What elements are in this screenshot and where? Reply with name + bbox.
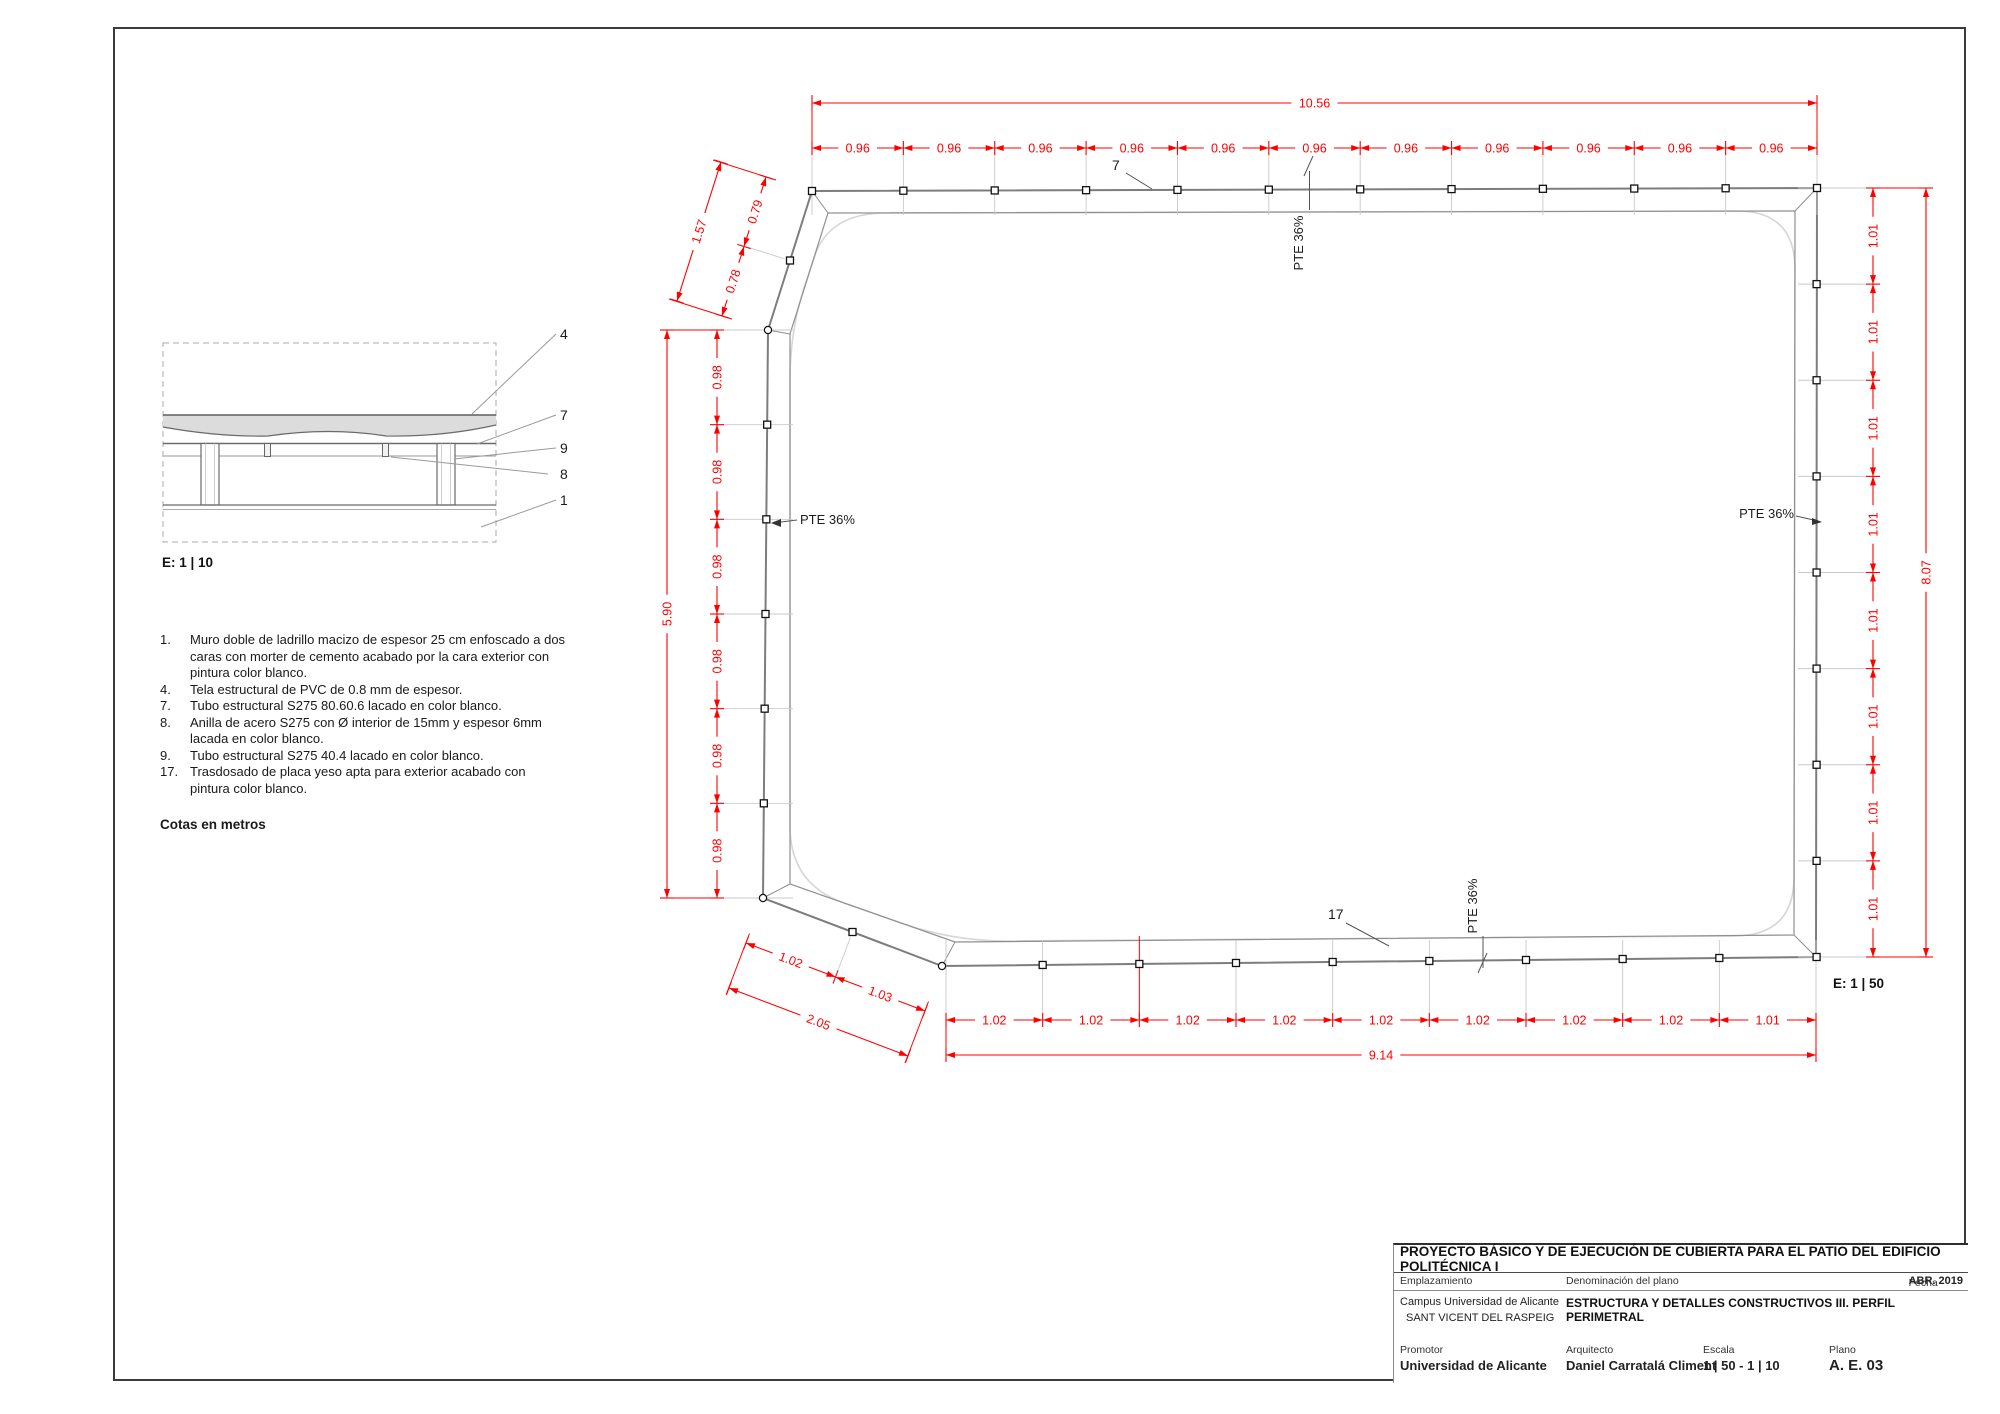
- dim-label: 1.02: [982, 1013, 1006, 1027]
- dim-label: 0.98: [710, 460, 724, 484]
- dim-arrow: [1719, 1017, 1728, 1023]
- dim-arrow: [1614, 1017, 1623, 1023]
- dim-arrow: [714, 510, 720, 519]
- anchor-marker: [1813, 857, 1820, 864]
- corner-marker: [759, 894, 766, 901]
- dim-arrow: [714, 794, 720, 803]
- dim-arrow: [1870, 284, 1876, 293]
- leader-8: [391, 457, 548, 474]
- anchor-marker: [1539, 185, 1546, 192]
- dim-label: 0.96: [1576, 141, 1600, 155]
- dim-label: 0.96: [1485, 141, 1509, 155]
- note-item-4: 4.Tela estructural de PVC de 0.8 mm de e…: [160, 682, 568, 699]
- dim-line: [837, 1029, 908, 1056]
- detail-callout-9: 9: [560, 440, 568, 456]
- dim-label: 10.56: [1299, 96, 1330, 110]
- dim-label: 1.57: [689, 218, 710, 245]
- anchor-marker: [1813, 761, 1820, 768]
- dim-arrow: [1717, 145, 1726, 151]
- anchor-marker: [787, 257, 794, 264]
- arquitecto-label: Arquitecto: [1566, 1344, 1613, 1356]
- dim-label: 1.01: [1866, 608, 1880, 632]
- dim-arrow: [714, 425, 720, 434]
- dim-label: 0.96: [1759, 141, 1783, 155]
- emplazamiento-line2: SANT VICENT DEL RASPEIG: [1406, 1312, 1554, 1324]
- dim-arrow: [1870, 275, 1876, 284]
- anchor-marker: [1136, 960, 1143, 967]
- anchor-marker: [1265, 186, 1272, 193]
- dim-arrow: [836, 977, 845, 983]
- plan-scale-label: E: 1 | 50: [1833, 976, 1884, 991]
- dim-arrow: [946, 1017, 955, 1023]
- anchor-marker: [1357, 186, 1364, 193]
- detail-callout-7: 7: [560, 407, 568, 423]
- dim-chain-top: 0.960.960.960.960.960.960.960.960.960.96…: [812, 141, 1817, 155]
- detail-dashed-boundary: [163, 343, 496, 542]
- dim-arrow: [714, 330, 720, 339]
- plan-callout-7: 7: [1112, 157, 1120, 173]
- dim-arrow: [1517, 1017, 1526, 1023]
- promotor-value: Universidad de Alicante: [1400, 1358, 1547, 1373]
- slope-leader-top-slash: [1304, 156, 1313, 176]
- dim-label: 1.01: [1866, 224, 1880, 248]
- dim-arrow: [899, 1050, 908, 1056]
- dim-label: 1.01: [1866, 704, 1880, 728]
- dim-arrow: [946, 1052, 955, 1058]
- dim-label: 0.96: [1120, 141, 1144, 155]
- dim-label: 1.02: [1272, 1013, 1296, 1027]
- escala-value: 1 | 50 - 1 | 10: [1703, 1358, 1780, 1373]
- dim-arrow: [1177, 145, 1186, 151]
- note-number: 9.: [160, 748, 190, 765]
- dim-label: 0.96: [1302, 141, 1326, 155]
- detail-section-drawing: 4 7 9 8 1 E: 1 | 10: [162, 326, 568, 570]
- note-number: 4.: [160, 682, 190, 699]
- anchor-marker: [761, 705, 768, 712]
- dim-arrow: [677, 292, 683, 301]
- dim-total-left: 5.90: [660, 330, 674, 898]
- corner-marker: [938, 962, 945, 969]
- notes-list: 1.Muro doble de ladrillo macizo de espes…: [160, 632, 568, 834]
- dim-arrow: [729, 988, 738, 994]
- dim-arrow: [1870, 564, 1876, 573]
- dim-arrow: [916, 1005, 925, 1011]
- dim-label: 1.02: [1562, 1013, 1586, 1027]
- dim-arrow: [1526, 1017, 1535, 1023]
- dim-arrow: [1808, 100, 1817, 106]
- title-block-footer-row: Promotor Arquitecto Escala Plano Univers…: [1394, 1342, 1968, 1385]
- slope-label-left: PTE 36%: [800, 512, 855, 527]
- note-item-7: 7.Tubo estructural S275 80.60.6 lacado e…: [160, 698, 568, 715]
- plano-value: A. E. 03: [1829, 1357, 1883, 1374]
- dim-label: 1.03: [866, 983, 894, 1005]
- anchor-marker: [809, 188, 816, 195]
- dim-label: 0.96: [846, 141, 870, 155]
- dim-arrow: [1870, 467, 1876, 476]
- dim-arrow: [995, 145, 1004, 151]
- anchor-marker: [1813, 377, 1820, 384]
- dim-arrow: [1870, 380, 1876, 389]
- leader-4: [472, 334, 556, 414]
- steel-ring-left: [265, 444, 271, 457]
- dim-label: 0.78: [723, 268, 744, 295]
- post-tube-right: [437, 444, 455, 506]
- emplazamiento-line1: Campus Universidad de Alicante: [1400, 1296, 1559, 1308]
- note-item-1: 1.Muro doble de ladrillo macizo de espes…: [160, 632, 568, 682]
- note-text: Trasdosado de placa yeso apta para exter…: [190, 764, 568, 797]
- anchor-marker: [1448, 186, 1455, 193]
- dim-arrow: [1168, 145, 1177, 151]
- anchor-marker: [760, 800, 767, 807]
- dim-arrow: [760, 177, 766, 186]
- dim-arrow: [1870, 669, 1876, 678]
- anchor-marker: [1523, 956, 1530, 963]
- dim-arrow: [1324, 1017, 1333, 1023]
- dim-arrow: [903, 145, 912, 151]
- dim-label: 0.98: [710, 744, 724, 768]
- dim-arrow: [986, 145, 995, 151]
- note-text: Tubo estructural S275 40.4 lacado en col…: [190, 748, 568, 765]
- plan-callout-17: 17: [1328, 906, 1344, 922]
- anchor-marker: [763, 516, 770, 523]
- dim-label: 1.01: [1866, 416, 1880, 440]
- dim-arrow: [1443, 145, 1452, 151]
- anchor-marker: [1813, 473, 1820, 480]
- dim-total-top: 10.56: [812, 96, 1817, 110]
- dim-arrow: [714, 709, 720, 718]
- dim-label: 0.96: [937, 141, 961, 155]
- dim-arrow: [714, 416, 720, 425]
- dim-arrow: [722, 307, 728, 316]
- dim-arrow: [1227, 1017, 1236, 1023]
- dim-arrow: [1360, 145, 1369, 151]
- dim-arrow: [715, 162, 721, 171]
- dim-label: 0.98: [710, 554, 724, 578]
- note-text: Tubo estructural S275 80.60.6 lacado en …: [190, 698, 568, 715]
- anchor-marker: [1716, 954, 1723, 961]
- dim-arrow: [812, 145, 821, 151]
- dim-label: 1.02: [777, 949, 805, 971]
- fecha-label: Fecha: [1909, 1277, 1938, 1289]
- slope-label-right: PTE 36%: [1739, 506, 1794, 521]
- dim-arrow: [1043, 1017, 1052, 1023]
- detail-scale-label: E: 1 | 10: [162, 555, 213, 570]
- dim-label: 1.01: [1866, 801, 1880, 825]
- notes-footer: Cotas en metros: [160, 817, 568, 834]
- anchor-marker: [849, 929, 856, 936]
- leader-1: [481, 500, 556, 527]
- dim-arrow: [1351, 145, 1360, 151]
- dim-line: [729, 988, 800, 1015]
- title-block-header-row: Emplazamiento Denominación del plano Fec…: [1394, 1273, 1968, 1291]
- dim-chain-left: 0.980.980.980.980.980.98: [710, 330, 724, 898]
- dim-label: 1.02: [1465, 1013, 1489, 1027]
- dim-label: 0.98: [710, 365, 724, 389]
- plano-label: Plano: [1829, 1344, 1856, 1356]
- corner-marker: [764, 326, 771, 333]
- project-title: PROYECTO BÁSICO Y DE EJECUCIÓN DE CUBIER…: [1394, 1245, 1968, 1273]
- dim-arrow: [1808, 145, 1817, 151]
- dim-arrow: [664, 330, 670, 339]
- dim-label: 1.01: [1866, 897, 1880, 921]
- dim-arrow: [714, 614, 720, 623]
- dim-label: 8.07: [1919, 560, 1933, 584]
- fecha-field: Fecha ABR. 2019: [1909, 1275, 1963, 1287]
- note-text: Muro doble de ladrillo macizo de espesor…: [190, 632, 568, 682]
- dim-arrow: [1534, 145, 1543, 151]
- dim-arrow: [1260, 145, 1269, 151]
- ext-chamfer-tl: [748, 247, 784, 258]
- dim-arrow: [1726, 145, 1735, 151]
- dim-label: 1.02: [1175, 1013, 1199, 1027]
- title-block-content-row: Campus Universidad de Alicante SANT VICE…: [1394, 1291, 1968, 1342]
- dim-arrow: [1452, 145, 1461, 151]
- escala-label: Escala: [1703, 1344, 1735, 1356]
- leader-9: [454, 448, 556, 459]
- anchor-marker: [1813, 281, 1820, 288]
- ext-chamfer-bl: [837, 938, 851, 974]
- slope-label-top: PTE 36%: [1291, 215, 1306, 270]
- dim-arrow: [1870, 861, 1876, 870]
- post-tube-left: [201, 444, 219, 506]
- dim-arrow: [1870, 371, 1876, 380]
- dim-arrow: [1807, 1052, 1816, 1058]
- anchor-marker: [991, 187, 998, 194]
- anchor-marker: [1814, 184, 1821, 191]
- anchor-marker: [900, 187, 907, 194]
- anchor-marker: [1039, 961, 1046, 968]
- anchor-marker: [1329, 958, 1336, 965]
- dim-arrow: [1333, 1017, 1342, 1023]
- dim-arrow: [1429, 1017, 1438, 1023]
- dim-arrow: [744, 237, 750, 246]
- dim-arrow: [1870, 573, 1876, 582]
- dim-label: 0.98: [710, 838, 724, 862]
- dim-label: 1.02: [1369, 1013, 1393, 1027]
- anchor-marker: [1233, 959, 1240, 966]
- dim-label: 0.96: [1668, 141, 1692, 155]
- dim-arrow: [1077, 145, 1086, 151]
- dim-arrow: [714, 605, 720, 614]
- dim-arrow: [1634, 145, 1643, 151]
- dim-arrow: [1870, 476, 1876, 485]
- dim-arrow: [714, 519, 720, 528]
- note-item-9: 9.Tubo estructural S275 40.4 lacado en c…: [160, 748, 568, 765]
- dim-arrow: [1236, 1017, 1245, 1023]
- dim-arrow: [1139, 1017, 1148, 1023]
- emplazamiento-label: Emplazamiento: [1400, 1275, 1472, 1287]
- dim-arrow: [746, 943, 755, 949]
- dim-label: 0.96: [1211, 141, 1235, 155]
- dim-arrow: [1870, 660, 1876, 669]
- dim-arrow: [1870, 948, 1876, 957]
- dim-arrow: [1710, 1017, 1719, 1023]
- note-number: 8.: [160, 715, 190, 748]
- roof-plan-profile: [763, 188, 1817, 966]
- dim-arrow: [1625, 145, 1634, 151]
- dim-arrow: [714, 803, 720, 812]
- dim-label: 9.14: [1369, 1048, 1393, 1062]
- note-item-8: 8.Anilla de acero S275 con Ø interior de…: [160, 715, 568, 748]
- note-text: Tela estructural de PVC de 0.8 mm de esp…: [190, 682, 568, 699]
- dim-label: 1.01: [1866, 320, 1880, 344]
- dim-arrow: [826, 971, 835, 977]
- dim-arrow: [1870, 188, 1876, 197]
- denominacion-value: ESTRUCTURA Y DETALLES CONSTRUCTIVOS III.…: [1566, 1296, 1968, 1324]
- dim-label: 0.98: [710, 649, 724, 673]
- dim-arrow: [1870, 852, 1876, 861]
- dim-arrow: [1269, 145, 1278, 151]
- dim-arrow: [714, 889, 720, 898]
- anchor-marker: [1813, 665, 1820, 672]
- dim-arrow: [1870, 765, 1876, 774]
- dim-label: 5.90: [660, 602, 674, 626]
- dim-arrow: [1543, 145, 1552, 151]
- dim-label: 0.96: [1028, 141, 1052, 155]
- dim-label: 1.02: [1659, 1013, 1683, 1027]
- dim-arrow: [1623, 1017, 1632, 1023]
- dim-chain-right: 1.011.011.011.011.011.011.011.01: [1866, 188, 1880, 957]
- anchor-marker: [762, 611, 769, 618]
- dim-arrow: [1130, 1017, 1139, 1023]
- dim-arrow: [812, 100, 821, 106]
- steel-ring-right: [383, 444, 389, 457]
- note-item-17: 17.Trasdosado de placa yeso apta para ex…: [160, 764, 568, 797]
- dim-label: 1.01: [1866, 512, 1880, 536]
- dim-total-right: 8.07: [1919, 188, 1933, 957]
- note-number: 17.: [160, 764, 190, 797]
- arquitecto-value: Daniel Carratalá Climent: [1566, 1358, 1716, 1373]
- dim-arrow: [894, 145, 903, 151]
- dim-arrow: [1807, 1017, 1816, 1023]
- profile-outer-edge: [763, 188, 1817, 966]
- detail-callout-8: 8: [560, 466, 568, 482]
- dim-label: 1.01: [1755, 1013, 1779, 1027]
- dim-total-chamfer-tl: 1.57: [670, 160, 727, 303]
- promotor-label: Promotor: [1400, 1344, 1443, 1356]
- callout-leader-7: [1126, 173, 1152, 189]
- denominacion-label: Denominación del plano: [1566, 1275, 1679, 1287]
- note-text: Anilla de acero S275 con Ø interior de 1…: [190, 715, 568, 748]
- dim-arrow: [1923, 948, 1929, 957]
- anchor-marker: [1722, 185, 1729, 192]
- note-number: 7.: [160, 698, 190, 715]
- slope-label-bottom: PTE 36%: [1465, 878, 1480, 933]
- dim-arrow: [1870, 756, 1876, 765]
- dim-label: 2.05: [805, 1011, 833, 1033]
- dim-chain-chamfer-tl: 0.780.79: [715, 175, 772, 318]
- dim-arrow: [664, 889, 670, 898]
- anchor-marker: [1631, 185, 1638, 192]
- detail-callout-1: 1: [560, 492, 568, 508]
- dim-arrow: [1034, 1017, 1043, 1023]
- anchor-marker: [1813, 569, 1820, 576]
- detail-callout-4: 4: [560, 326, 568, 342]
- anchor-marker: [1813, 954, 1820, 961]
- title-block: PROYECTO BÁSICO Y DE EJECUCIÓN DE CUBIER…: [1393, 1243, 1968, 1383]
- dim-label: 1.02: [1079, 1013, 1103, 1027]
- notes-items: 1.Muro doble de ladrillo macizo de espes…: [160, 632, 568, 797]
- dim-label: 0.96: [1394, 141, 1418, 155]
- anchor-marker: [764, 421, 771, 428]
- dim-arrow: [1923, 188, 1929, 197]
- anchor-marker: [1619, 955, 1626, 962]
- dim-chain-bottom: 1.021.021.021.021.021.021.021.021.01: [946, 1013, 1816, 1027]
- anchor-marker: [1174, 186, 1181, 193]
- anchor-marker: [1426, 957, 1433, 964]
- dim-arrow: [714, 700, 720, 709]
- dim-arrow: [738, 247, 744, 256]
- anchor-marker: [1083, 187, 1090, 194]
- dim-arrow: [1420, 1017, 1429, 1023]
- dim-label: 0.79: [745, 198, 766, 225]
- dim-total-bottom: 9.14: [946, 1048, 1816, 1062]
- note-number: 1.: [160, 632, 190, 682]
- dim-arrow: [1086, 145, 1095, 151]
